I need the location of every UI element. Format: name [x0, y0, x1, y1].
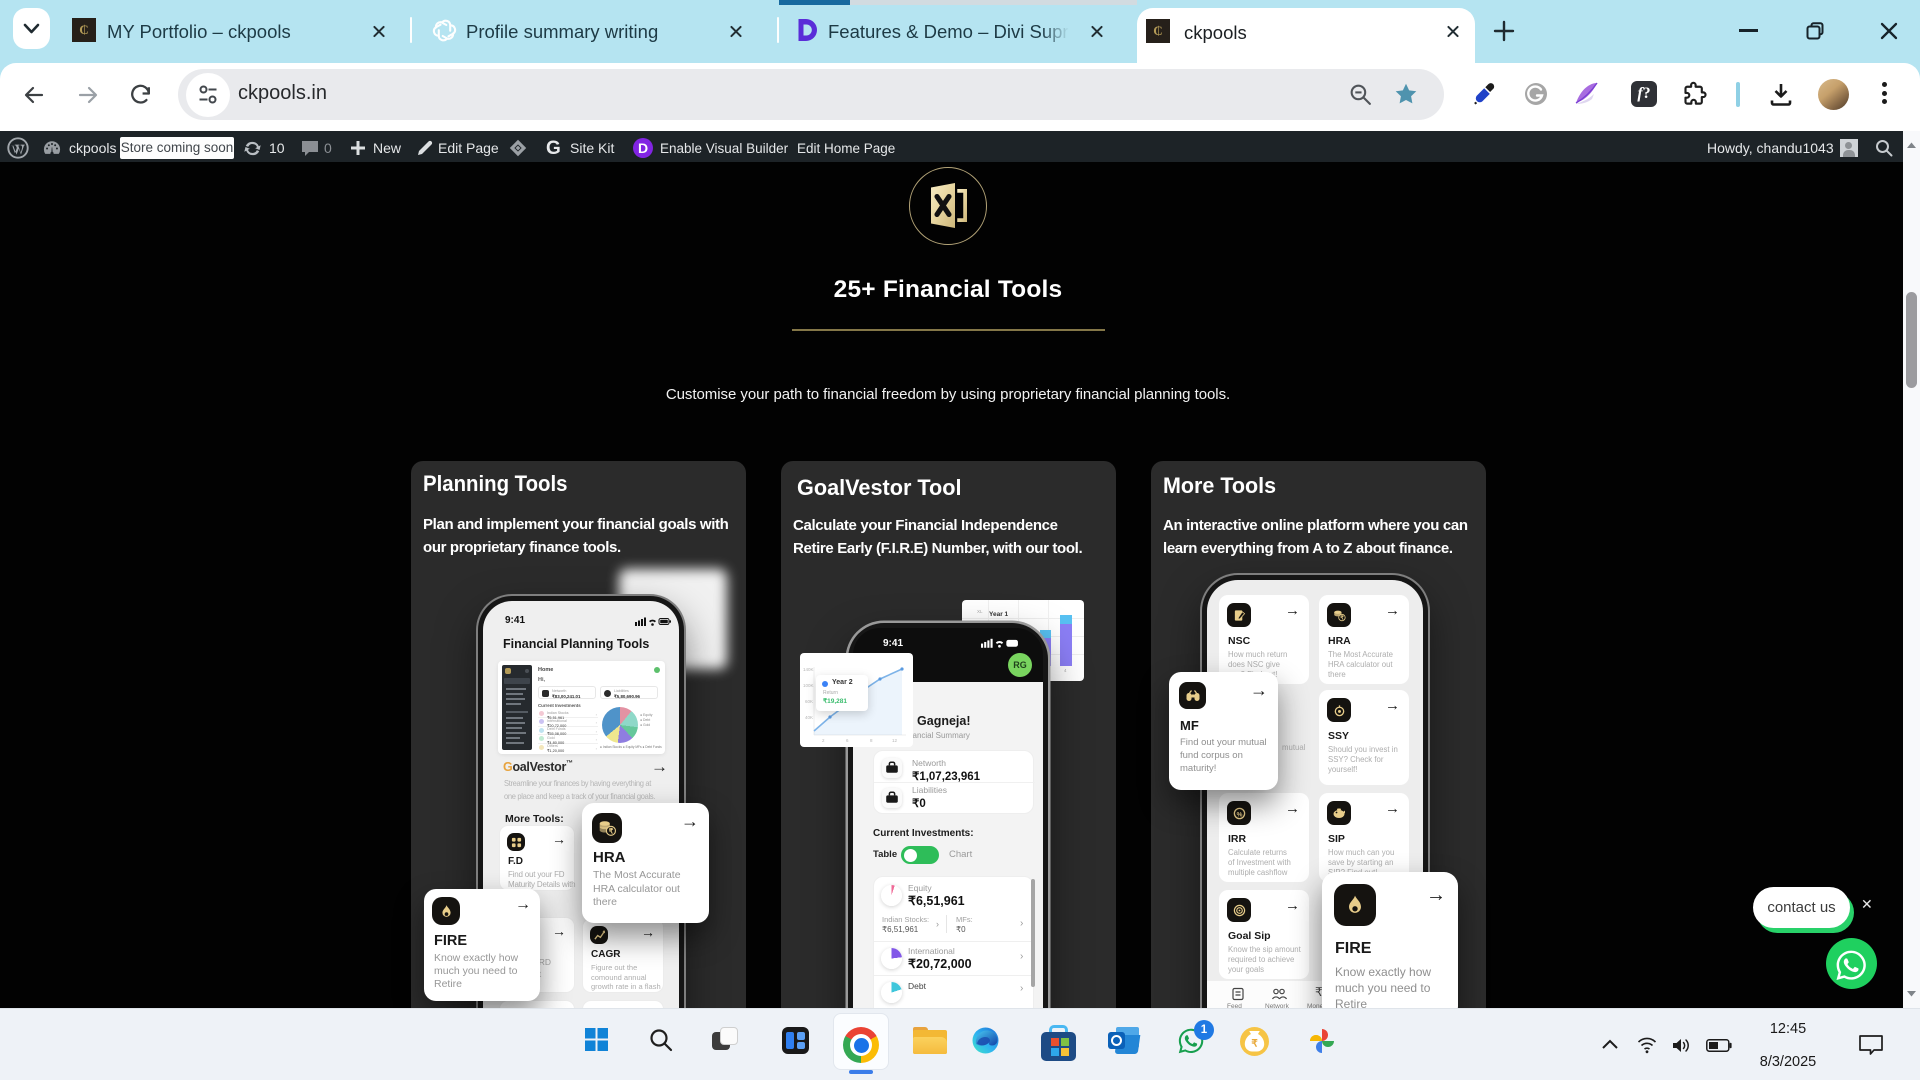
svg-text:60K: 60K	[805, 699, 813, 704]
svg-text:140K: 140K	[803, 667, 814, 672]
svg-text:%: %	[1236, 811, 1242, 818]
svg-text:12: 12	[892, 738, 898, 743]
svg-text:8: 8	[870, 738, 873, 743]
svg-text:40K: 40K	[805, 715, 813, 720]
svg-text:100K: 100K	[803, 683, 814, 688]
svg-text:2: 2	[822, 738, 825, 743]
svg-text:₹: ₹	[1251, 1039, 1258, 1050]
svg-text:6: 6	[846, 738, 849, 743]
svg-text:₹: ₹	[609, 827, 614, 836]
